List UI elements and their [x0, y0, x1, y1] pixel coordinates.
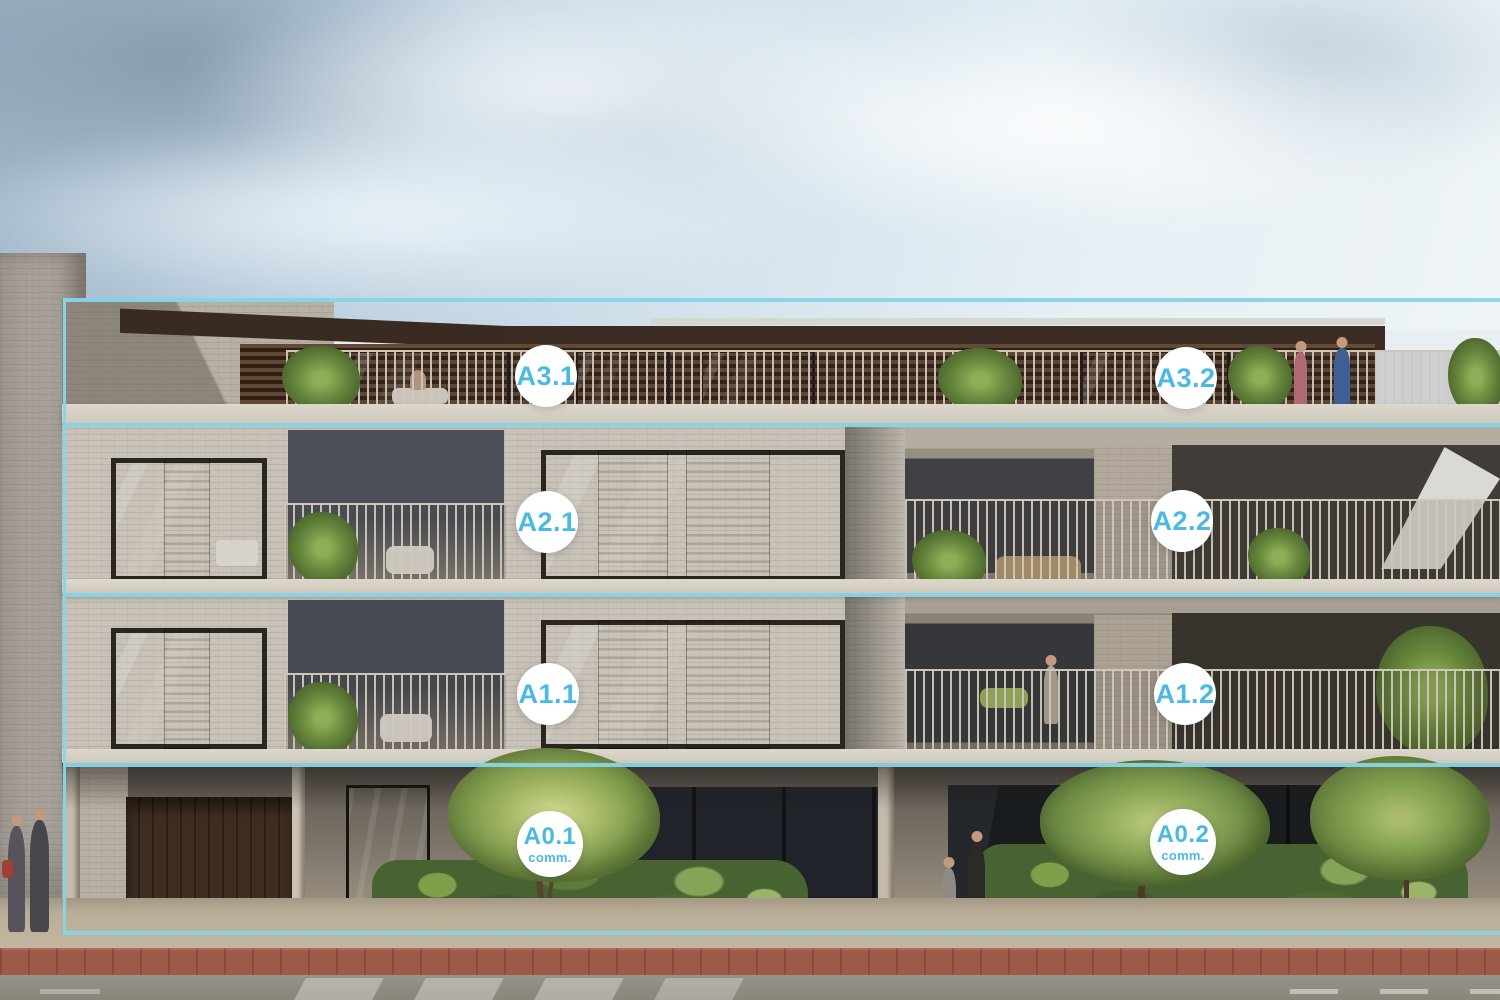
building-unit-selector: A3.1 A3.2 A2.1 A2.2 A1.1 A1.2 A0.1 comm.… [0, 0, 1500, 1000]
overlay-floor-line [63, 423, 1500, 427]
overlay-layer: A3.1 A3.2 A2.1 A2.2 A1.1 A1.2 A0.1 comm.… [0, 0, 1500, 1000]
unit-badge-a2-2[interactable]: A2.2 [1151, 490, 1213, 552]
unit-label: A2.2 [1152, 508, 1211, 535]
unit-badge-a0-1[interactable]: A0.1 comm. [517, 811, 583, 877]
floor-band-0[interactable] [63, 763, 1500, 931]
unit-label: A1.1 [518, 681, 577, 708]
unit-sublabel: comm. [1161, 849, 1204, 862]
unit-badge-a3-1[interactable]: A3.1 [515, 345, 577, 407]
overlay-floor-line [63, 298, 1500, 302]
unit-label: A3.1 [516, 363, 575, 390]
unit-sublabel: comm. [528, 851, 571, 864]
unit-badge-a3-2[interactable]: A3.2 [1155, 347, 1217, 409]
unit-badge-a2-1[interactable]: A2.1 [516, 491, 578, 553]
unit-label: A0.1 [524, 825, 577, 849]
unit-badge-a1-1[interactable]: A1.1 [517, 663, 579, 725]
unit-label: A1.2 [1155, 681, 1214, 708]
overlay-floor-line [63, 763, 1500, 767]
unit-badge-a1-2[interactable]: A1.2 [1154, 663, 1216, 725]
unit-badge-a0-2[interactable]: A0.2 comm. [1150, 809, 1216, 875]
unit-label: A0.2 [1157, 823, 1210, 847]
overlay-floor-line [63, 931, 1500, 935]
unit-label: A3.2 [1156, 365, 1215, 392]
floor-band-2[interactable] [63, 423, 1500, 593]
floor-band-3[interactable] [63, 298, 1500, 423]
floor-band-1[interactable] [63, 593, 1500, 763]
overlay-floor-line [63, 593, 1500, 597]
unit-label: A2.1 [517, 509, 576, 536]
overlay-left-edge-line [63, 298, 66, 935]
